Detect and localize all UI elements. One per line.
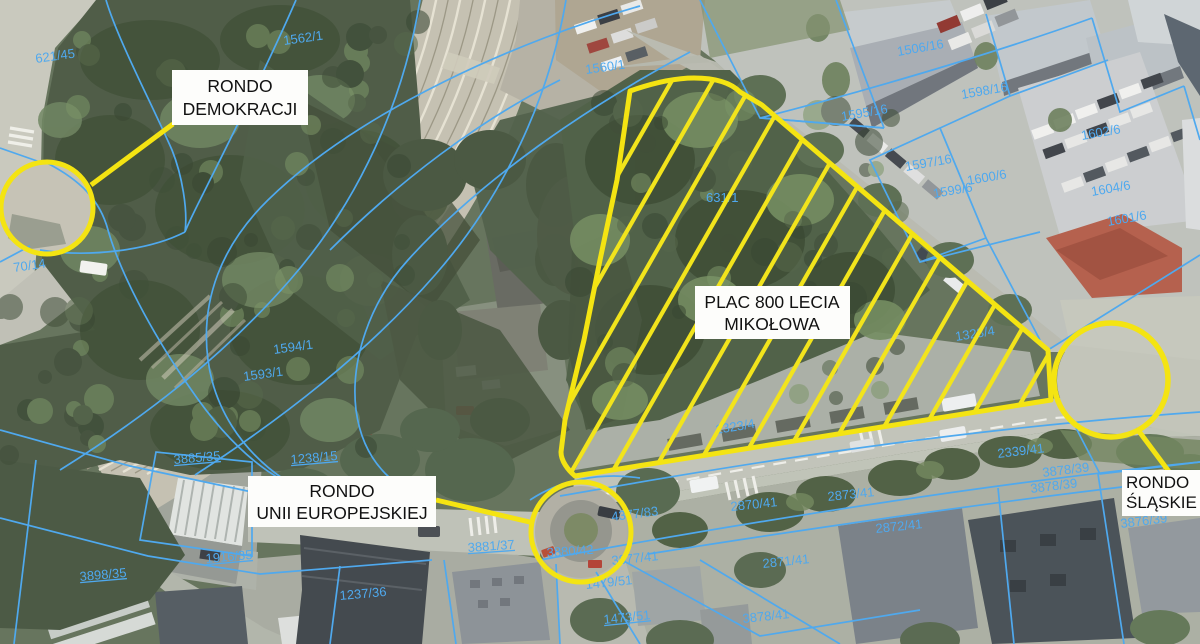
svg-text:MIKOŁOWA: MIKOŁOWA — [724, 314, 820, 334]
svg-text:UNII EUROPEJSKIEJ: UNII EUROPEJSKIEJ — [256, 503, 427, 523]
svg-text:DEMOKRACJI: DEMOKRACJI — [183, 99, 298, 119]
svg-text:RONDO: RONDO — [207, 76, 272, 96]
svg-text:PLAC 800 LECIA: PLAC 800 LECIA — [704, 292, 840, 312]
svg-text:ŚLĄSKIE: ŚLĄSKIE — [1126, 493, 1197, 512]
svg-text:RONDO: RONDO — [309, 481, 374, 501]
svg-text:RONDO: RONDO — [1126, 473, 1189, 492]
